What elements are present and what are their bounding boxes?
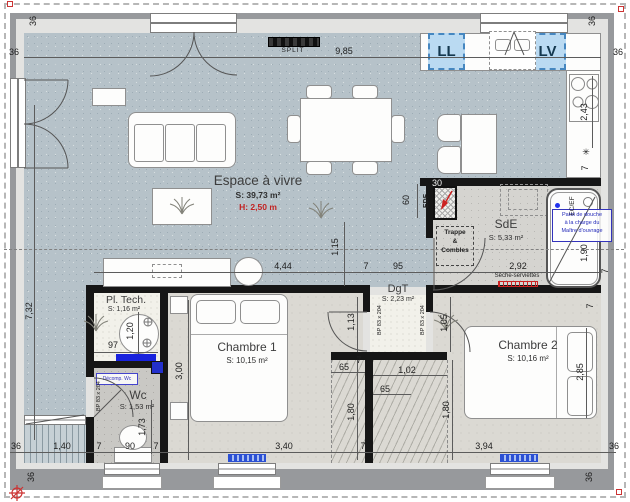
dim-ch1-w: 3,40 — [264, 441, 304, 451]
dim-line — [373, 375, 447, 376]
dim-ch2-entry: 1,05 — [439, 309, 449, 337]
chambre2-area: S: 10,16 m² — [470, 354, 586, 363]
dim-7: 7 — [357, 441, 369, 451]
living-name: Espace à vivre — [198, 173, 318, 188]
trappe-label: Trappe — [437, 229, 473, 236]
dim-line — [344, 222, 345, 286]
dim-wall: 36 — [584, 463, 594, 491]
dim-wc-d: 1,73 — [137, 413, 147, 441]
dim-kitchen-depth: 2,43 — [579, 98, 589, 126]
heater-connections — [143, 318, 152, 347]
dim-7: 7 — [585, 292, 595, 320]
dim-pltech-w: 97 — [100, 340, 126, 350]
chambre1-name: Chambre 1 — [192, 340, 302, 354]
dim-wall: 36 — [604, 441, 624, 451]
dim-line — [24, 57, 601, 58]
dim-closet2-w: 1,02 — [390, 365, 424, 375]
edf-arrow — [441, 191, 452, 210]
paroi-note-line2: à la charge du — [554, 220, 610, 226]
living-area: S: 39,73 m² — [198, 190, 318, 200]
dim-7: 7 — [580, 154, 590, 182]
dim-k-offset: 1,15 — [330, 233, 340, 261]
dgt-name: DgT — [376, 283, 420, 295]
survey-marker-tl — [7, 1, 13, 7]
dim-living-w: 4,44 — [258, 261, 308, 271]
dim-line — [138, 312, 139, 354]
dim-pltech-d: 1,20 — [125, 317, 135, 345]
dim-dgt-opening: 95 — [384, 261, 412, 271]
pltech-area: S: 1,16 m² — [95, 306, 153, 313]
paroi-note-line3: Maître d'ouvrage — [554, 228, 610, 234]
dim-sde-w: 2,92 — [494, 261, 542, 271]
dim-line — [331, 372, 365, 373]
dim-7: 7 — [354, 355, 364, 365]
floor-plan: LL LV Décomp. Wc — [0, 0, 630, 502]
dim-duct-h: 60 — [401, 186, 411, 214]
door-bp-label-ch2: BP 83 x 204 — [418, 307, 428, 335]
dim-line — [450, 297, 451, 352]
dim-deck-w: 1,40 — [46, 441, 78, 451]
wc-name: Wc — [120, 388, 156, 402]
survey-marker-tr — [618, 6, 624, 12]
dim-7: 7 — [150, 441, 162, 451]
dim-line — [10, 452, 616, 453]
dim-wall: 36 — [26, 463, 36, 491]
dim-line — [188, 300, 189, 460]
door-bp-label-wc: BP 83 x 204 — [94, 383, 104, 411]
dim-closet2-d: 65 — [374, 384, 396, 394]
dim-wall: 36 — [587, 7, 597, 35]
survey-marker-br — [616, 489, 622, 495]
combles-label: Combles — [435, 247, 475, 254]
dim-overall-width: 9,85 — [320, 46, 368, 56]
plan-linework — [0, 0, 630, 502]
chambre1-area: S: 10,15 m² — [192, 356, 302, 365]
dim-line — [452, 360, 453, 460]
dim-line — [417, 184, 418, 218]
wc-area: S: 1,53 m² — [108, 402, 166, 411]
dim-ch1-d: 3,00 — [174, 357, 184, 385]
dim-line — [373, 394, 411, 395]
dim-closet-h: 1,80 — [441, 396, 451, 424]
pltech-name: Pl. Tech. — [96, 294, 156, 306]
dim-wc-door: 90 — [118, 441, 142, 451]
split-label: SPLIT — [270, 47, 316, 54]
section-line — [4, 249, 624, 250]
dim-line — [357, 297, 358, 352]
dim-closet-d: 65 — [333, 362, 355, 372]
dim-overall-depth: 7,32 — [24, 297, 34, 325]
dim-line — [94, 352, 158, 353]
dim-shower-l: 1,90 — [579, 239, 589, 267]
survey-marker-bl — [9, 485, 25, 501]
chambre2-name: Chambre 2 — [470, 338, 586, 352]
door-bp-label-ch1: BP 83 x 204 — [375, 307, 385, 335]
dim-line — [592, 76, 593, 148]
sde-area: S: 5,33 m² — [477, 233, 535, 242]
dim-wall: 36 — [28, 7, 38, 35]
paroi-note-line1: Paroi de douche — [554, 212, 610, 218]
dim-wall: 36 — [4, 47, 24, 57]
dim-line — [586, 328, 587, 418]
dgt-area: S: 2,23 m² — [368, 296, 428, 303]
dim-wall: 36 — [608, 47, 628, 57]
dim-dgt-d: 1,13 — [346, 308, 356, 336]
seche-serviettes-label: Sèche-serviettes — [478, 273, 556, 279]
dim-closet-h: 1,80 — [346, 398, 356, 426]
living-height: H: 2,50 m — [198, 202, 318, 212]
dim-7: 7 — [93, 441, 105, 451]
dim-wall: 36 — [6, 441, 26, 451]
dim-7: 7 — [359, 261, 373, 271]
sde-name: SdE — [480, 217, 532, 231]
dim-7: 7 — [600, 257, 610, 285]
dim-line — [34, 105, 35, 440]
edf-label: EDF — [422, 187, 432, 215]
trappe-amp: & — [437, 238, 473, 245]
dim-ch2-w: 3,94 — [464, 441, 504, 451]
